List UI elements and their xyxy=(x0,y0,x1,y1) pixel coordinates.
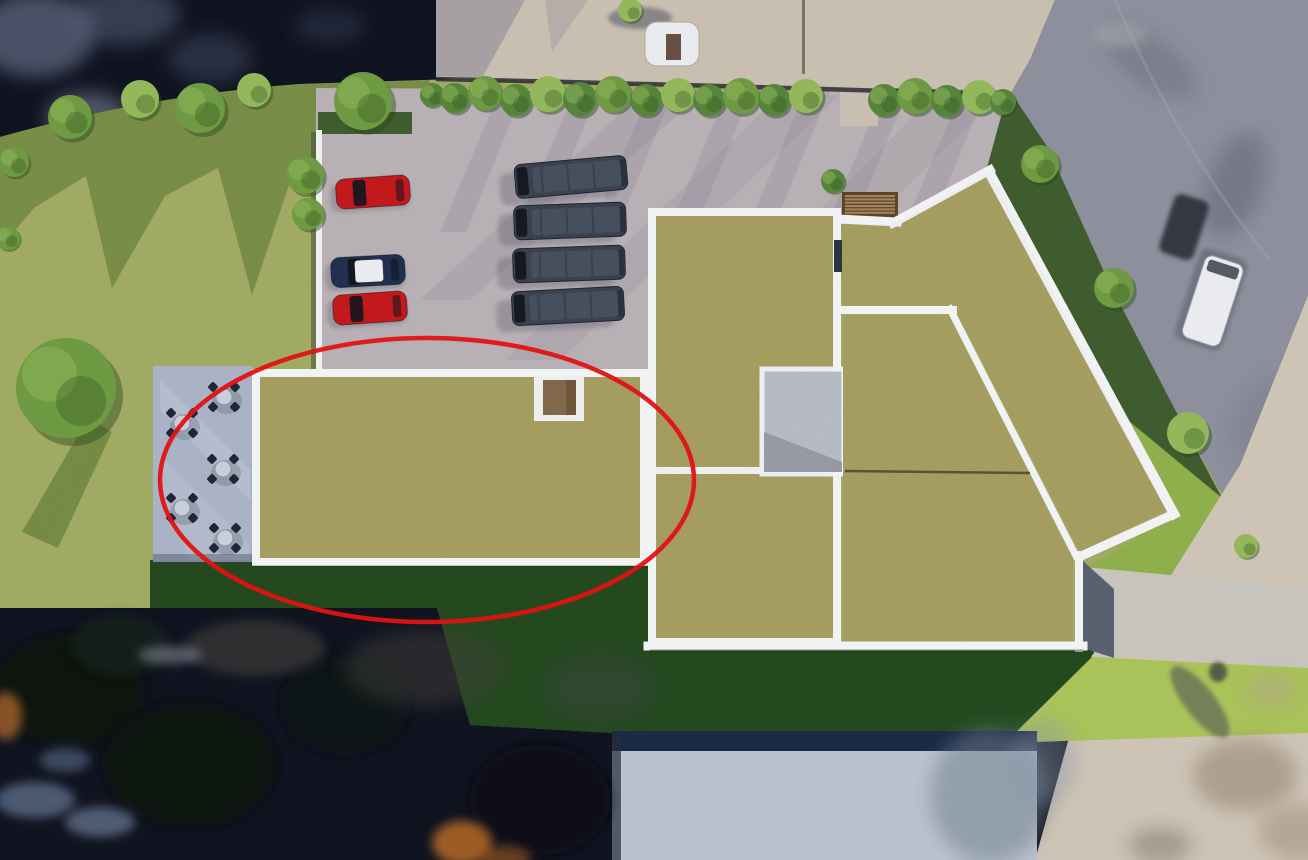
tree-shade xyxy=(301,170,320,189)
photo-blob xyxy=(1193,739,1297,811)
photo-blob xyxy=(168,34,252,82)
photo-blob xyxy=(1209,662,1227,682)
tree-shade xyxy=(513,96,529,112)
van-rear xyxy=(620,206,626,232)
tree-shade xyxy=(944,97,960,113)
tree-shade xyxy=(706,96,722,112)
photo-blob xyxy=(105,703,275,827)
tree-shade xyxy=(430,92,442,104)
car-rear-window xyxy=(395,179,405,202)
tree-shade xyxy=(195,102,220,127)
tree-shade xyxy=(643,96,659,112)
site-plan-canvas xyxy=(0,0,1308,860)
tree-shade xyxy=(771,96,787,112)
tree-shade xyxy=(136,94,155,113)
table-top xyxy=(215,461,231,477)
tree-shade xyxy=(609,90,627,108)
step-slat xyxy=(845,195,895,197)
tree-shade xyxy=(803,92,820,109)
van-roof xyxy=(532,206,621,235)
tree-shade xyxy=(911,92,929,110)
parked-van xyxy=(495,286,625,333)
tree-shade xyxy=(737,92,755,110)
photo-blob xyxy=(1094,22,1146,48)
van-rear xyxy=(619,249,625,275)
car-rear-window xyxy=(390,258,399,280)
site-plan-rendering xyxy=(0,0,1308,860)
van-windshield xyxy=(515,252,527,280)
tree-shade xyxy=(577,95,594,112)
tree-shade xyxy=(1110,283,1130,303)
white-building-edge xyxy=(612,731,621,860)
tree-shade xyxy=(1184,428,1205,449)
van-windshield xyxy=(513,294,525,323)
parked-photo-car-detail xyxy=(666,34,681,60)
parked-car xyxy=(329,174,411,213)
tree-shade xyxy=(66,112,88,134)
tree-shade xyxy=(482,89,499,106)
photo-blob xyxy=(1013,720,1077,804)
step-slat xyxy=(845,198,895,200)
tree-shade xyxy=(11,158,26,173)
tree-shade xyxy=(56,376,106,426)
van-roof xyxy=(529,290,618,321)
car-windshield xyxy=(349,296,364,323)
step-slat xyxy=(845,208,895,210)
photo-blob xyxy=(72,615,168,675)
parked-car xyxy=(324,254,406,291)
tree-shade xyxy=(628,7,640,19)
table-top xyxy=(217,530,233,546)
step-slat xyxy=(845,212,895,214)
tree-shade xyxy=(6,235,18,247)
tree-shade xyxy=(1244,543,1256,555)
tree-shade xyxy=(305,210,321,226)
entrance-steps xyxy=(842,192,898,218)
tree-shade xyxy=(675,91,692,108)
tree-shade xyxy=(831,178,843,190)
tree-shade xyxy=(251,86,268,103)
van-windshield xyxy=(516,209,528,237)
photo-blob xyxy=(545,656,655,720)
step-slat xyxy=(845,202,895,204)
road-pole xyxy=(802,0,805,74)
parked-van xyxy=(496,245,625,289)
photo-blob xyxy=(65,807,135,837)
tree-shade xyxy=(881,96,897,112)
car-windshield xyxy=(352,180,367,207)
parked-van xyxy=(497,202,626,246)
tree-shade xyxy=(544,90,562,108)
van-roof xyxy=(531,249,620,278)
photo-blob xyxy=(40,748,90,772)
table-top xyxy=(174,500,190,516)
car-roof xyxy=(354,259,383,282)
photo-blob xyxy=(1246,675,1298,705)
photo-blob xyxy=(185,620,325,676)
photo-blob xyxy=(138,646,202,664)
car-rear-window xyxy=(392,295,402,318)
tree-shade xyxy=(452,94,467,109)
photo-blob xyxy=(294,8,366,44)
step-slat xyxy=(845,205,895,207)
tree-shade xyxy=(357,94,386,123)
parked-car xyxy=(326,290,408,329)
tree-shade xyxy=(1036,159,1055,178)
tree-shade xyxy=(1000,99,1013,112)
photo-blob xyxy=(345,630,505,706)
